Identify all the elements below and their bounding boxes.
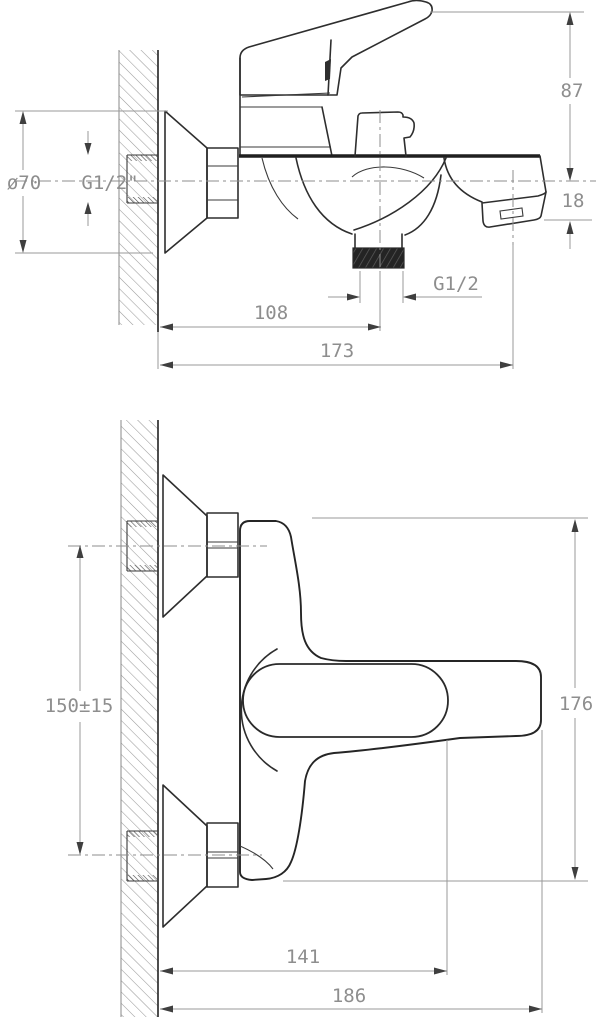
dim-label-overall-height: 176	[559, 693, 593, 715]
faucet-dimension-drawing: ø70 G1/2" 87 18	[0, 0, 600, 1017]
spout-nose-front	[240, 846, 273, 869]
front-view-drawing: 150±15 176 141 186	[45, 420, 593, 1017]
dim-spout-drop: 18	[544, 190, 592, 249]
escutcheon-cone-side	[165, 111, 207, 253]
dim-inlet-spacing: 150±15	[45, 545, 114, 855]
dim-shower-thread: G1/2	[328, 271, 482, 303]
dim-wall-to-handle-grip: 141	[160, 946, 447, 975]
escutcheon-cone-bottom	[163, 785, 207, 927]
mounting-nut-side	[207, 148, 238, 218]
handle-notch	[325, 59, 331, 81]
technical-drawing-page: ø70 G1/2" 87 18	[0, 0, 600, 1017]
lever-handle-front	[243, 664, 448, 737]
wall-section-front	[121, 420, 158, 1017]
dim-label-overall-width: 186	[332, 985, 366, 1007]
body-bell-side	[262, 158, 482, 235]
dim-label-wall-to-shower-outlet: 108	[254, 302, 288, 324]
dim-label-wall-to-handle-grip: 141	[286, 946, 320, 968]
dim-label-total-projection: 173	[320, 340, 354, 362]
side-view-drawing: ø70 G1/2" 87 18	[7, 1, 596, 370]
diverter-knob	[355, 112, 414, 156]
dim-label-inlet-spacing: 150±15	[45, 695, 114, 717]
dim-wall-to-shower-outlet: 108	[160, 302, 381, 331]
dim-overall-width: 186	[160, 985, 542, 1013]
dim-label-handle-height: 87	[561, 80, 584, 102]
dim-label-inlet-thread: G1/2"	[81, 172, 138, 194]
dim-label-flange-diameter: ø70	[7, 172, 41, 194]
tub-spout-side	[482, 156, 546, 227]
dim-label-shower-thread: G1/2	[433, 273, 479, 295]
shower-outlet-thread	[353, 234, 404, 268]
mounting-nut-top	[207, 513, 238, 577]
dim-label-spout-drop: 18	[562, 190, 585, 212]
wall-hatch-front	[121, 420, 158, 1017]
wall-section-side	[119, 50, 158, 369]
dim-total-projection: 173	[160, 340, 513, 369]
mixer-body-side	[239, 58, 540, 156]
lever-handle-side	[240, 1, 432, 96]
